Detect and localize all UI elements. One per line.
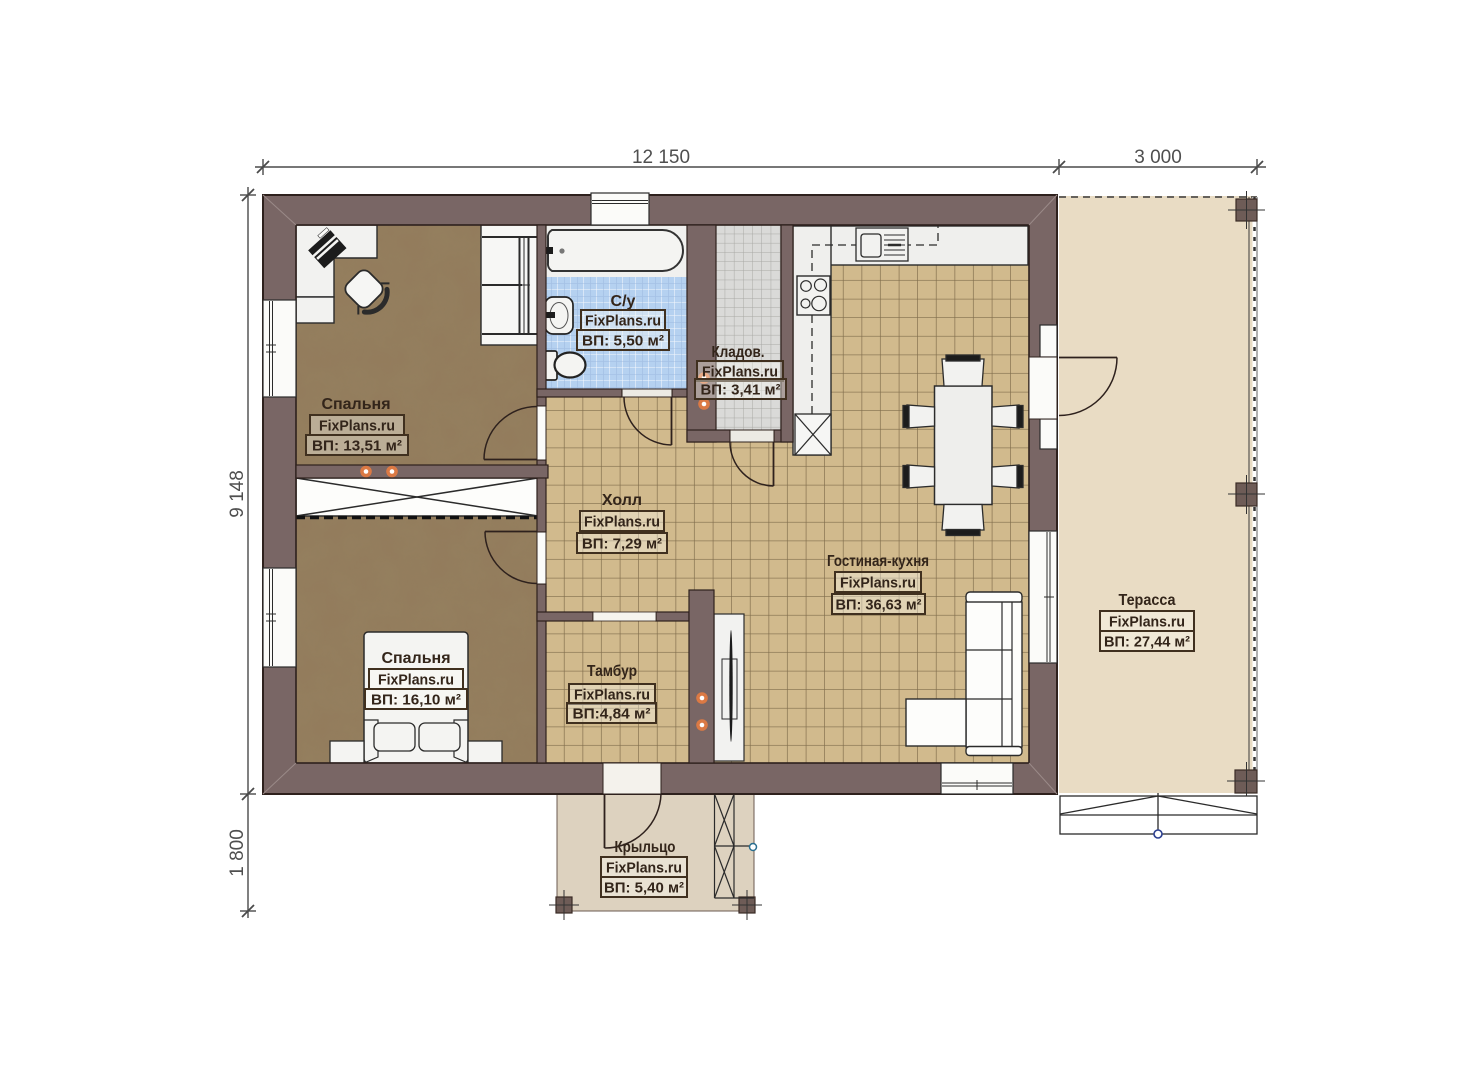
svg-text:FixPlans.ru: FixPlans.ru xyxy=(319,418,395,435)
svg-text:Крыльцо: Крыльцо xyxy=(615,839,676,856)
svg-text:FixPlans.ru: FixPlans.ru xyxy=(584,514,660,531)
svg-text:1 800: 1 800 xyxy=(227,829,248,877)
svg-text:FixPlans.ru: FixPlans.ru xyxy=(606,860,682,877)
svg-text:ВП:4,84 м²: ВП:4,84 м² xyxy=(573,706,651,723)
svg-text:С/у: С/у xyxy=(611,293,636,310)
svg-text:9 148: 9 148 xyxy=(227,470,248,518)
svg-text:12 150: 12 150 xyxy=(632,147,690,168)
svg-text:ВП: 36,63 м²: ВП: 36,63 м² xyxy=(836,597,922,614)
svg-text:ВП: 27,44 м²: ВП: 27,44 м² xyxy=(1104,634,1190,651)
svg-text:ВП: 3,41 м²: ВП: 3,41 м² xyxy=(701,382,781,399)
svg-text:3 000: 3 000 xyxy=(1134,147,1182,168)
svg-text:Тамбур: Тамбур xyxy=(587,663,637,680)
svg-text:FixPlans.ru: FixPlans.ru xyxy=(1109,614,1185,631)
svg-text:Спальня: Спальня xyxy=(321,396,390,413)
svg-text:Холл: Холл xyxy=(602,492,642,509)
svg-text:Спальня: Спальня xyxy=(381,650,450,667)
svg-text:FixPlans.ru: FixPlans.ru xyxy=(840,575,916,592)
svg-text:ВП: 5,50 м²: ВП: 5,50 м² xyxy=(582,333,664,350)
svg-text:ВП: 5,40 м²: ВП: 5,40 м² xyxy=(604,880,684,897)
svg-text:ВП: 7,29 м²: ВП: 7,29 м² xyxy=(582,536,662,553)
svg-text:FixPlans.ru: FixPlans.ru xyxy=(378,672,454,689)
svg-text:Гостиная-кухня: Гостиная-кухня xyxy=(827,553,929,570)
svg-text:FixPlans.ru: FixPlans.ru xyxy=(702,364,778,381)
svg-text:FixPlans.ru: FixPlans.ru xyxy=(574,687,650,704)
svg-text:Терасса: Терасса xyxy=(1119,592,1176,609)
svg-text:Кладов.: Кладов. xyxy=(712,344,765,361)
svg-text:ВП: 16,10 м²: ВП: 16,10 м² xyxy=(371,692,461,709)
svg-text:ВП: 13,51 м²: ВП: 13,51 м² xyxy=(312,438,402,455)
svg-text:FixPlans.ru: FixPlans.ru xyxy=(585,313,661,330)
